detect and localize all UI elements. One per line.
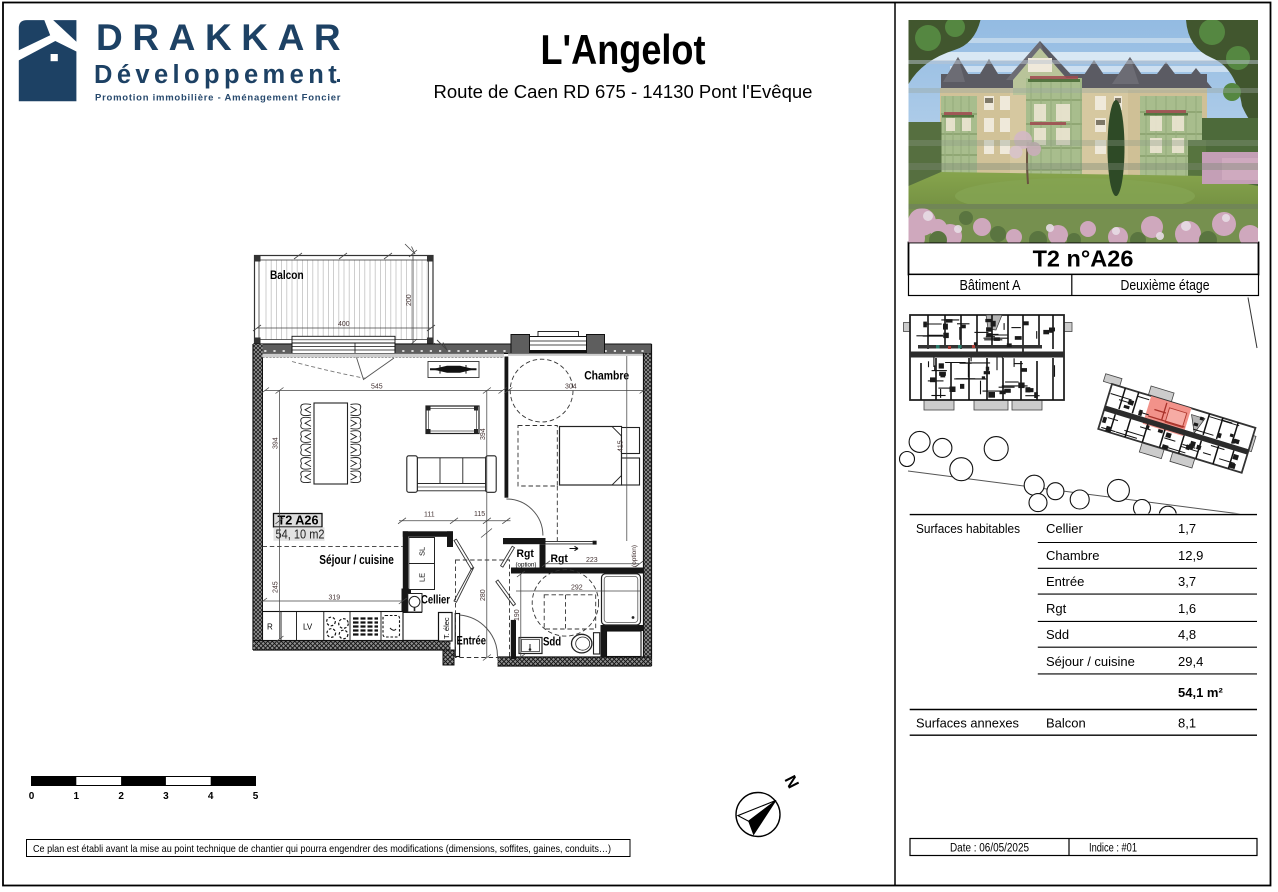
svg-text:Entrée: Entrée (1046, 574, 1084, 589)
svg-text:415: 415 (618, 440, 625, 452)
svg-text:292: 292 (571, 585, 583, 592)
svg-text:223: 223 (586, 557, 598, 564)
svg-text:Balcon: Balcon (1046, 716, 1086, 731)
svg-text:200: 200 (406, 294, 413, 306)
svg-text:Route de Caen RD 675 - 14130 P: Route de Caen RD 675 - 14130 Pont l'Evêq… (434, 81, 813, 102)
svg-text:T2 n°A26: T2 n°A26 (1033, 246, 1134, 272)
svg-text:115: 115 (474, 511, 485, 518)
svg-text:Balcon: Balcon (270, 268, 304, 282)
svg-text:304: 304 (565, 384, 577, 391)
svg-text:3: 3 (163, 791, 169, 802)
svg-text:Rgt: Rgt (551, 553, 569, 565)
svg-text:L'Angelot: L'Angelot (541, 26, 706, 73)
svg-text:Cellier: Cellier (421, 595, 450, 607)
svg-text:Rgt: Rgt (517, 548, 535, 560)
svg-text:Chambre: Chambre (1046, 548, 1099, 563)
svg-text:Date : 06/05/2025: Date : 06/05/2025 (950, 842, 1029, 854)
svg-text:T. élec: T. élec (442, 617, 451, 639)
svg-text:4: 4 (208, 791, 214, 802)
svg-text:12,9: 12,9 (1178, 548, 1203, 563)
svg-text:Développement: Développement (94, 61, 341, 89)
svg-text:Promotion immobilière - Aménag: Promotion immobilière - Aménagement Fonc… (95, 93, 341, 104)
svg-text:Deuxième étage: Deuxième étage (1121, 278, 1210, 294)
svg-text:1,6: 1,6 (1178, 601, 1196, 616)
svg-text:T2 A26: T2 A26 (278, 514, 319, 528)
svg-text:2: 2 (118, 791, 124, 802)
svg-text:Surfaces habitables: Surfaces habitables (916, 521, 1020, 536)
svg-text:54,1 m²: 54,1 m² (1178, 685, 1223, 700)
svg-text:29,4: 29,4 (1178, 654, 1203, 669)
svg-text:111: 111 (424, 512, 435, 519)
svg-text:(option): (option) (631, 545, 638, 567)
svg-text:Rgt: Rgt (1046, 601, 1067, 616)
svg-text:4,8: 4,8 (1178, 627, 1196, 642)
svg-text:Sdd: Sdd (543, 637, 561, 649)
svg-text:245: 245 (273, 581, 280, 593)
svg-text:R: R (267, 623, 273, 632)
svg-text:190: 190 (514, 609, 521, 621)
svg-text:394: 394 (273, 437, 280, 449)
svg-text:Surfaces annexes: Surfaces annexes (916, 716, 1019, 731)
svg-text:1: 1 (74, 791, 80, 802)
svg-text:3,7: 3,7 (1178, 574, 1196, 589)
svg-text:400: 400 (338, 321, 350, 328)
svg-text:319: 319 (329, 595, 341, 602)
svg-text:0: 0 (29, 791, 35, 802)
svg-text:(option): (option) (516, 562, 537, 569)
svg-text:1,7: 1,7 (1178, 521, 1196, 536)
svg-text:N: N (781, 773, 802, 792)
svg-text:Indice : #01: Indice : #01 (1089, 842, 1137, 854)
svg-text:LE: LE (418, 573, 427, 582)
svg-text:LV: LV (303, 623, 313, 632)
svg-text:SL: SL (418, 547, 427, 556)
svg-text:DRAKKAR: DRAKKAR (96, 17, 350, 58)
svg-text:Séjour / cuisine: Séjour / cuisine (319, 553, 394, 567)
svg-text:Bâtiment A: Bâtiment A (960, 278, 1021, 294)
svg-text:Sdd: Sdd (1046, 627, 1069, 642)
svg-text:54, 10 m2: 54, 10 m2 (276, 528, 325, 542)
svg-text:Séjour / cuisine: Séjour / cuisine (1046, 654, 1135, 669)
svg-text:Ce plan est établi avant la mi: Ce plan est établi avant la mise au poin… (33, 844, 611, 855)
svg-text:Entrée: Entrée (457, 636, 487, 648)
svg-text:5: 5 (253, 791, 259, 802)
svg-text:280: 280 (480, 589, 487, 601)
svg-text:8,1: 8,1 (1178, 716, 1196, 731)
svg-text:545: 545 (371, 384, 383, 391)
svg-text:Chambre: Chambre (584, 371, 629, 383)
svg-text:394: 394 (480, 428, 487, 440)
svg-text:Cellier: Cellier (1046, 521, 1084, 536)
